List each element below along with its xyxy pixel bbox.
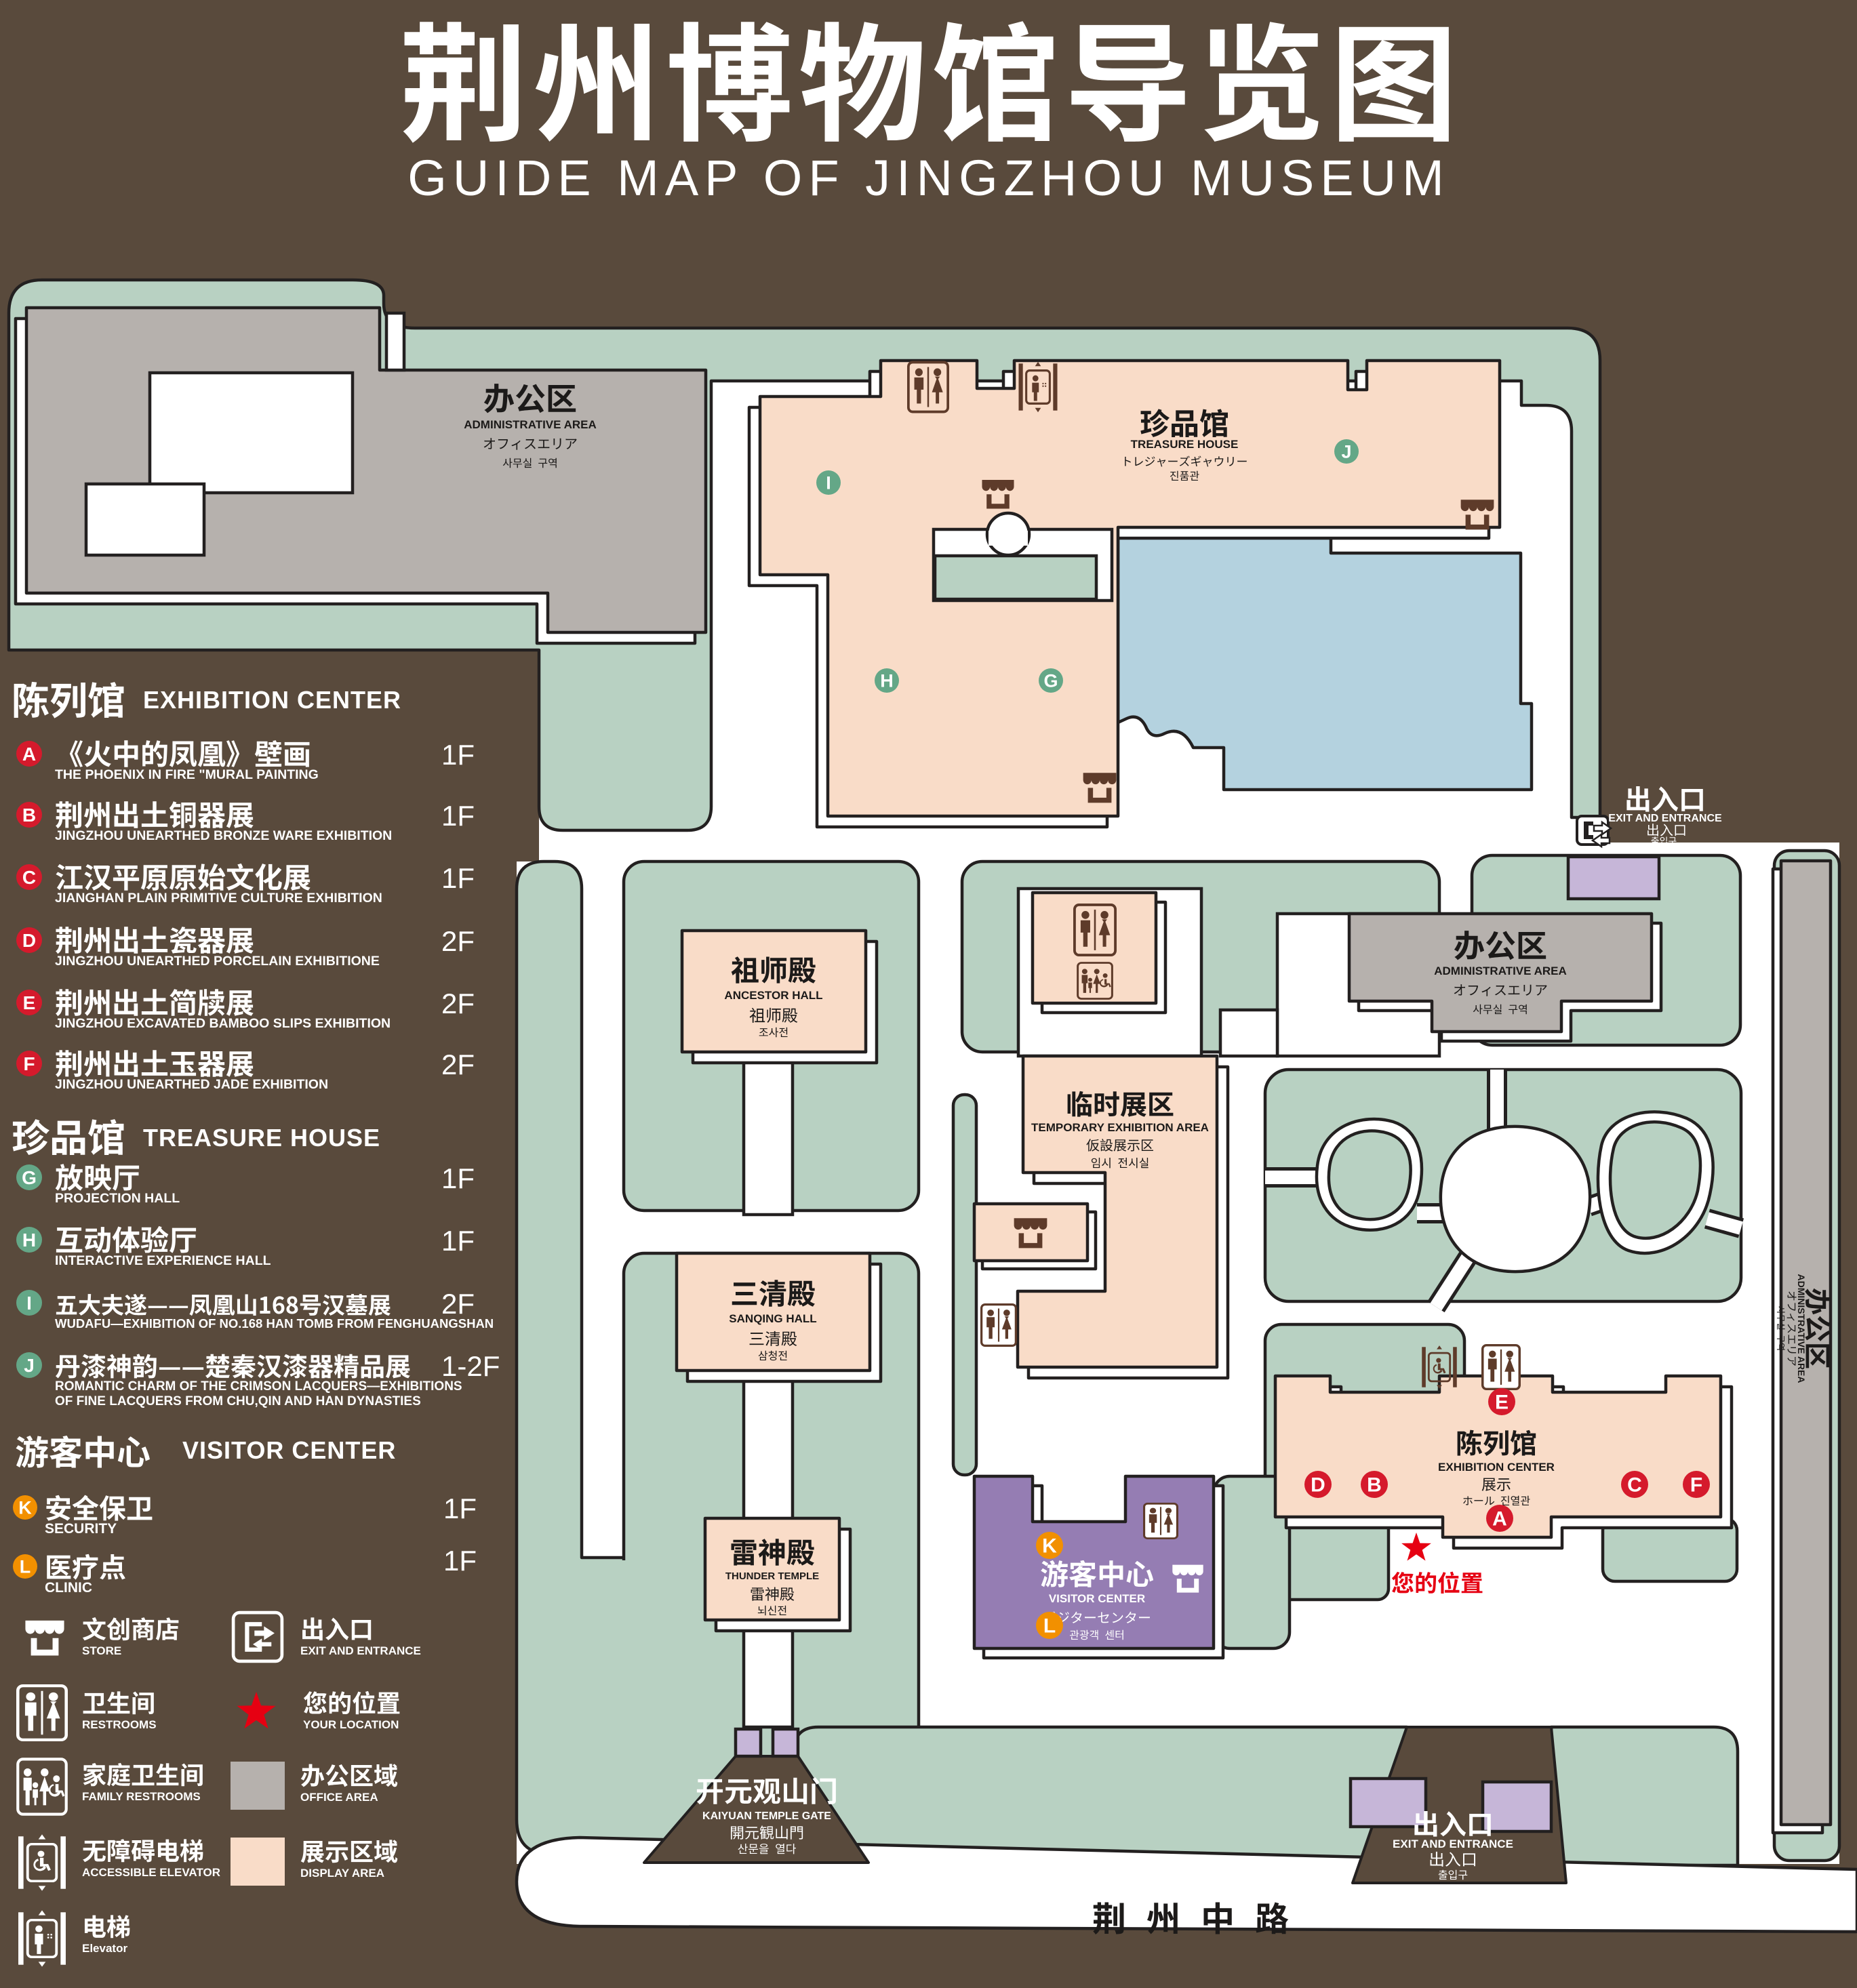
- svg-text:2F: 2F: [441, 925, 475, 957]
- svg-text:I: I: [26, 1293, 32, 1314]
- svg-text:E: E: [23, 992, 36, 1013]
- svg-text:J: J: [24, 1355, 35, 1376]
- svg-text:1F: 1F: [441, 862, 475, 894]
- svg-text:OFFICE AREA: OFFICE AREA: [300, 1791, 378, 1804]
- svg-text:K: K: [1042, 1535, 1057, 1557]
- svg-text:D: D: [1311, 1474, 1325, 1496]
- svg-text:2F: 2F: [441, 1288, 475, 1320]
- svg-text:EXHIBITION CENTER: EXHIBITION CENTER: [143, 686, 401, 714]
- svg-text:INTERACTIVE EXPERIENCE HALL: INTERACTIVE EXPERIENCE HALL: [55, 1253, 271, 1268]
- svg-text:1F: 1F: [441, 1225, 475, 1257]
- svg-text:E: E: [1495, 1391, 1509, 1413]
- svg-text:OF FINE LACQUERS FROM CHU,QIN: OF FINE LACQUERS FROM CHU,QIN AND HAN DY…: [55, 1394, 421, 1408]
- svg-text:SECURITY: SECURITY: [45, 1521, 117, 1537]
- svg-text:STORE: STORE: [82, 1644, 121, 1657]
- svg-text:FAMILY RESTROOMS: FAMILY RESTROOMS: [82, 1790, 201, 1803]
- svg-text:1F: 1F: [441, 1162, 475, 1194]
- svg-text:CLINIC: CLINIC: [45, 1580, 92, 1596]
- svg-text:JINGZHOU UNEARTHED JADE EXHIBI: JINGZHOU UNEARTHED JADE EXHIBITION: [55, 1077, 328, 1092]
- svg-text:EXIT AND ENTRANCE: EXIT AND ENTRANCE: [300, 1644, 421, 1657]
- svg-text:D: D: [22, 930, 36, 951]
- svg-text:2F: 2F: [441, 988, 475, 1019]
- svg-text:EXIT AND ENTRANCE: EXIT AND ENTRANCE: [1393, 1838, 1513, 1850]
- svg-text:J: J: [1341, 441, 1351, 462]
- svg-text:F: F: [1690, 1474, 1702, 1496]
- svg-text:EXHIBITION CENTER: EXHIBITION CENTER: [1438, 1461, 1555, 1474]
- svg-text:EXIT AND ENTRANCE: EXIT AND ENTRANCE: [1608, 813, 1722, 824]
- svg-text:L: L: [1043, 1615, 1056, 1637]
- svg-text:1F: 1F: [443, 1545, 477, 1577]
- svg-text:THUNDER TEMPLE: THUNDER TEMPLE: [725, 1570, 819, 1582]
- svg-text:THE PHOENIX IN FIRE "MURAL PAI: THE PHOENIX IN FIRE "MURAL PAINTING: [55, 767, 319, 782]
- svg-text:ADMINISTRATIVE AREA: ADMINISTRATIVE AREA: [1796, 1274, 1807, 1383]
- svg-text:JIANGHAN PLAIN PRIMITIVE CULTU: JIANGHAN PLAIN PRIMITIVE CULTURE EXHIBIT…: [55, 891, 382, 906]
- svg-text:F: F: [23, 1053, 35, 1074]
- svg-text:ADMINISTRATIVE AREA: ADMINISTRATIVE AREA: [464, 418, 597, 431]
- svg-text:YOUR LOCATION: YOUR LOCATION: [303, 1718, 399, 1731]
- svg-text:ADMINISTRATIVE AREA: ADMINISTRATIVE AREA: [1434, 965, 1567, 977]
- svg-text:Elevator: Elevator: [82, 1942, 127, 1955]
- svg-text:B: B: [22, 805, 36, 826]
- svg-text:H: H: [880, 670, 894, 691]
- svg-text:1-2F: 1-2F: [441, 1350, 500, 1382]
- svg-text:G: G: [1043, 670, 1058, 691]
- svg-text:K: K: [18, 1497, 32, 1518]
- svg-text:RESTROOMS: RESTROOMS: [82, 1718, 157, 1731]
- svg-text:2F: 2F: [441, 1049, 475, 1080]
- svg-text:A: A: [22, 744, 36, 765]
- svg-text:G: G: [22, 1167, 37, 1188]
- svg-text:SANQING HALL: SANQING HALL: [729, 1312, 816, 1325]
- svg-text:1F: 1F: [443, 1493, 477, 1524]
- svg-text:1F: 1F: [441, 739, 475, 771]
- svg-text:ROMANTIC CHARM OF THE CRIMSON: ROMANTIC CHARM OF THE CRIMSON LACQUERS—E…: [55, 1379, 462, 1394]
- svg-text:C: C: [22, 867, 36, 888]
- svg-text:TEMPORARY EXHIBITION AREA: TEMPORARY EXHIBITION AREA: [1031, 1121, 1209, 1134]
- svg-text:TREASURE HOUSE: TREASURE HOUSE: [143, 1124, 380, 1152]
- svg-text:L: L: [20, 1556, 31, 1577]
- svg-text:WUDAFU—EXHIBITION OF NO.168 HA: WUDAFU—EXHIBITION OF NO.168 HAN TOMB FRO…: [55, 1316, 494, 1331]
- svg-text:C: C: [1627, 1474, 1642, 1496]
- svg-text:JINGZHOU UNEARTHED PORCELAIN E: JINGZHOU UNEARTHED PORCELAIN EXHIBITIONE: [55, 954, 380, 969]
- svg-text:ACCESSIBLE ELEVATOR: ACCESSIBLE ELEVATOR: [82, 1866, 220, 1879]
- svg-text:VISITOR CENTER: VISITOR CENTER: [182, 1436, 396, 1464]
- svg-text:PROJECTION HALL: PROJECTION HALL: [55, 1191, 180, 1206]
- svg-text:KAIYUAN TEMPLE GATE: KAIYUAN TEMPLE GATE: [702, 1810, 831, 1822]
- svg-text:JINGZHOU EXCAVATED BAMBOO SLIP: JINGZHOU EXCAVATED BAMBOO SLIPS EXHIBITI…: [55, 1016, 391, 1031]
- svg-text:TREASURE HOUSE: TREASURE HOUSE: [1131, 438, 1239, 451]
- svg-text:JINGZHOU UNEARTHED BRONZE WARE: JINGZHOU UNEARTHED BRONZE WARE EXHIBITIO…: [55, 828, 392, 843]
- svg-text:H: H: [22, 1230, 36, 1251]
- svg-text:B: B: [1367, 1474, 1382, 1496]
- svg-text:ANCESTOR HALL: ANCESTOR HALL: [724, 989, 822, 1002]
- svg-text:1F: 1F: [441, 800, 475, 832]
- svg-text:VISITOR CENTER: VISITOR CENTER: [1049, 1592, 1145, 1605]
- svg-text:DISPLAY AREA: DISPLAY AREA: [300, 1867, 384, 1880]
- svg-text:A: A: [1492, 1507, 1507, 1530]
- svg-text:I: I: [826, 472, 831, 493]
- svg-text:GUIDE MAP OF JINGZHOU MUSEUM: GUIDE MAP OF JINGZHOU MUSEUM: [407, 150, 1450, 206]
